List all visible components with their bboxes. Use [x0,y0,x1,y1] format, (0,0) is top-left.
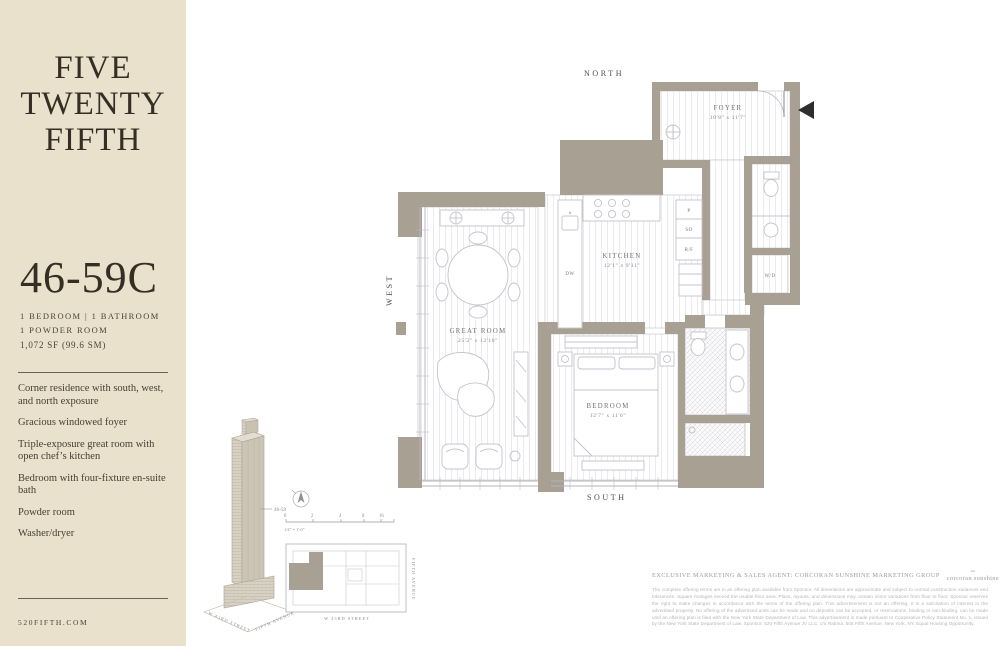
foyer-light-fixture [666,125,680,139]
toilet [691,339,705,356]
dishwasher-label: DW [565,272,574,277]
bedroom-dims: 12'7" x 11'6" [590,413,627,419]
armchair [476,444,502,469]
toilet [764,180,778,197]
scale-tick-label: 16 [379,514,384,519]
agent-line: EXCLUSIVE MARKETING & SALES AGENT: CORCO… [652,572,940,579]
sw-pier [398,437,422,488]
scale-tick-label: 8 [362,514,365,519]
kitchen-label: KITCHEN [603,253,642,260]
disclaimer-text: The complete offering terms are in an of… [652,587,988,628]
feature-item: Gracious windowed foyer [18,417,170,430]
tower-street-left-label: W 43RD STREET [208,610,252,633]
nightstand [558,352,572,366]
hall-floor [710,160,745,315]
south-label: SOUTH [587,493,627,502]
legal-footer: EXCLUSIVE MARKETING & SALES AGENT: CORCO… [652,569,988,628]
bench [582,461,644,470]
scale-bar: 0 2 4 8 16 1/4" = 1'-0" [284,514,394,532]
divider-top [18,372,168,373]
keyplan-street-bottom-label: W 43RD STREET [324,616,370,621]
unit-number: 46-59C [20,255,170,301]
west-label: WEST [385,274,394,306]
scale-tick-label: 4 [339,514,342,519]
unit-specs-line2: 1 POWDER ROOM [20,323,170,337]
logo-line-3: FIFTH [0,122,186,158]
floor-plan: NORTH SOUTH WEST [380,60,820,510]
feature-item: Corner residence with south, west, and n… [18,383,170,408]
great-room-dims: 25'2" x 12'10" [458,338,498,344]
foyer-dims: 10'8" x 11'7" [710,115,747,121]
scale-ratio-label: 1/4" = 1'-0" [284,527,305,532]
foyer-label: FOYER [714,105,743,112]
great-room-label: GREAT ROOM [450,328,507,335]
scale-tick-label: 2 [311,514,314,519]
keyplan-street-right-label: FIFTH AVENUE [411,558,416,601]
compass-icon [292,490,309,507]
feature-item: Bedroom with four-fixture en-suite bath [18,473,170,498]
feature-item: Washer/dryer [18,528,170,541]
logo-line-1: FIVE [0,50,186,86]
speed-oven-label: SO [685,228,692,233]
website-link[interactable]: 520FIFTH.COM [18,618,88,627]
sink [764,223,778,237]
feature-list: Corner residence with south, west, and n… [18,383,170,550]
armchair [442,444,468,469]
logo-line-2: TWENTY [0,86,186,122]
feature-item: Triple-exposure great room with open che… [18,439,170,464]
sidebar: FIVE TWENTY FIFTH 46-59C 1 BEDROOM | 1 B… [0,0,186,646]
north-label: NORTH [584,69,624,78]
corcoran-wordmark: corcoran sunshine [947,575,999,582]
entry-arrow-icon [798,101,814,119]
unit-block: 46-59C 1 BEDROOM | 1 BATHROOM 1 POWDER R… [20,255,170,350]
refrigerator-label: R/F [685,248,694,253]
divider-bottom [18,598,168,599]
unit-area: 1,072 SF (99.6 SM) [20,340,170,350]
nightstand [660,352,674,366]
tower-illustration [204,418,294,632]
feature-item: Powder room [18,507,170,520]
bedroom-label: BEDROOM [586,403,629,410]
tower-street-right-label: FIFTH AVENUE [254,610,295,632]
vanity [726,330,748,414]
console [514,352,528,436]
building-logo: FIVE TWENTY FIFTH [0,50,186,158]
dining-table [448,245,508,305]
floor-callout-label: 46-59 [274,507,287,513]
kitchen-dims: 12'1" x 9'11" [604,263,641,269]
corcoran-sunshine-logo: ⚯ corcoran sunshine [947,570,999,582]
foyer-floor [660,91,790,160]
washer-dryer-label: W/D [765,274,776,279]
key-plan: FIFTH AVENUE W 43RD STREET [286,544,416,621]
unit-specs-line1: 1 BEDROOM | 1 BATHROOM [20,309,170,323]
scale-tick-label: 0 [284,514,287,519]
pantry-label: P [687,209,690,214]
